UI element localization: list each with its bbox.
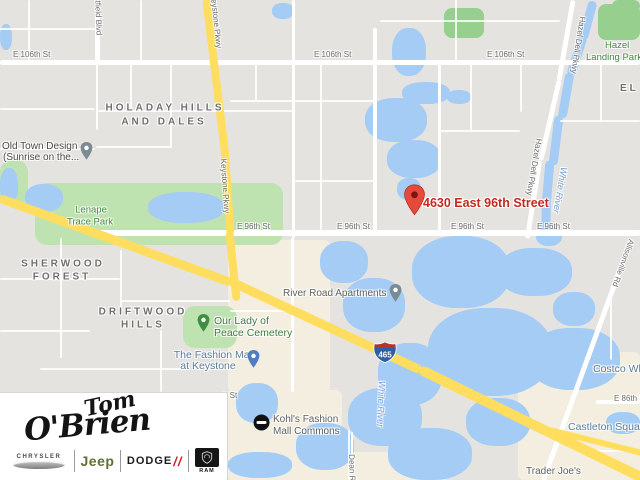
major-road [292, 0, 295, 238]
park-label[interactable]: Landing Park [586, 53, 640, 64]
brand-logos-row: CHRYSLER Jeep DODGE // RAM [10, 446, 219, 476]
minor-road [120, 300, 230, 302]
minor-road [140, 0, 142, 60]
minor-road [0, 330, 90, 332]
minor-road [255, 62, 257, 100]
street-label: E 96th St [337, 222, 370, 231]
minor-road [60, 238, 62, 358]
neighborhood-label: EL [620, 83, 639, 95]
kohls-logo-icon[interactable] [253, 414, 270, 431]
i465-highway-shield: 465 [373, 342, 397, 363]
water-area [553, 292, 595, 326]
neighborhood-label: HOLADAY HILLS [105, 102, 224, 114]
minor-road [440, 130, 520, 132]
neighborhood-label: AND DALES [121, 116, 206, 128]
dodge-wordmark: DODGE [127, 455, 172, 467]
water-area [388, 428, 472, 480]
brand-divider [74, 450, 75, 472]
cemetery-pin-icon[interactable] [197, 314, 210, 332]
minor-road [96, 146, 172, 148]
minor-road [40, 368, 190, 370]
dealer-name-script: Tom O'Brien [0, 393, 227, 449]
major-road [373, 28, 377, 233]
water-area [320, 241, 368, 283]
minor-road [320, 62, 322, 230]
dodge-slashes-icon: // [173, 454, 182, 469]
fashion-mall-pin-icon[interactable] [247, 350, 260, 368]
ram-wordmark: RAM [199, 468, 215, 474]
poi-label-fashion-mall-2[interactable]: at Keystone [180, 360, 235, 372]
water-area [412, 236, 510, 308]
water-area [228, 452, 292, 478]
poi-label-costco[interactable]: Costco Wholesale [593, 363, 640, 375]
minor-road [0, 28, 96, 30]
destination-address-label[interactable]: 4630 East 96th Street [423, 196, 549, 210]
park-label[interactable]: Hazel [605, 41, 629, 52]
ram-logo: RAM [195, 448, 219, 474]
chrysler-logo: CHRYSLER [10, 454, 68, 469]
brand-divider [188, 450, 189, 472]
park-label[interactable]: Peace Cemetery [214, 327, 292, 339]
minor-road [520, 62, 522, 112]
poi-label-old-town-design[interactable]: Old Town Design [2, 141, 77, 153]
park-area [444, 8, 484, 38]
water-area [148, 192, 224, 223]
poi-label-old-town-design-2[interactable]: (Sunrise on the... [3, 152, 79, 164]
minor-road [160, 330, 162, 392]
river-road-apartments-pin-icon[interactable] [389, 284, 402, 302]
street-label: E 106th St [487, 50, 524, 59]
poi-label-castleton-square[interactable]: Castleton Square [568, 421, 640, 433]
neighborhood-label: FOREST [33, 271, 92, 283]
minor-road [470, 62, 472, 132]
chrysler-wing-icon [13, 461, 65, 469]
minor-road [455, 0, 457, 60]
poi-label-kohls[interactable]: Kohl's Fashion [273, 414, 338, 426]
water-area [447, 90, 471, 104]
minor-road [0, 108, 95, 110]
major-road [96, 64, 98, 130]
dealer-logo-panel: Tom O'Brien CHRYSLER Jeep DODGE // RAM [0, 392, 228, 480]
map-canvas[interactable]: E 106th St E 106th St E 106th St E 96th … [0, 0, 640, 480]
street-label: E 86th St [614, 394, 640, 403]
water-area [392, 28, 426, 76]
minor-road [560, 120, 640, 122]
water-area [272, 3, 294, 19]
neighborhood-label: DRIFTWOOD [99, 306, 188, 318]
poi-label-trader-joes[interactable]: Trader Joe's [526, 466, 581, 478]
minor-road [610, 300, 612, 360]
street-label: E 96th St [237, 222, 270, 231]
i465-shield-number: 465 [378, 351, 392, 360]
old-town-design-pin-icon[interactable] [80, 142, 93, 160]
river-label: White River [375, 381, 387, 428]
street-label: E 106th St [13, 50, 50, 59]
water-area [528, 328, 620, 390]
poi-label-river-road-apartments[interactable]: River Road Apartments [283, 288, 386, 300]
street-label: Dean Rd [347, 454, 357, 480]
jeep-logo: Jeep [81, 453, 115, 469]
water-area [387, 140, 441, 178]
street-label: E 106th St [314, 50, 351, 59]
minor-road [380, 20, 560, 22]
street-label: E 96th St [451, 222, 484, 231]
dealer-name-line2: O'Brien [23, 402, 152, 449]
dodge-logo: DODGE // [127, 454, 183, 469]
street-label: Westfield Blvd [93, 0, 104, 35]
park-area [612, 0, 640, 12]
minor-road [295, 180, 375, 182]
neighborhood-label: HILLS [121, 319, 165, 331]
park-label[interactable]: Our Lady of [214, 315, 269, 327]
park-label[interactable]: Lenape [75, 206, 107, 217]
park-label[interactable]: Trace Park [67, 218, 113, 229]
neighborhood-label: SHERWOOD [21, 258, 105, 270]
destination-pin-icon[interactable] [404, 184, 425, 216]
water-area [498, 248, 572, 296]
brand-divider [120, 450, 121, 472]
street-label: E 96th St [537, 222, 570, 231]
poi-label-kohls-2[interactable]: Mall Commons [273, 426, 340, 438]
minor-road [600, 62, 602, 122]
chrysler-wordmark: CHRYSLER [17, 454, 62, 460]
ram-shield-icon [195, 448, 219, 467]
minor-road [230, 100, 375, 102]
